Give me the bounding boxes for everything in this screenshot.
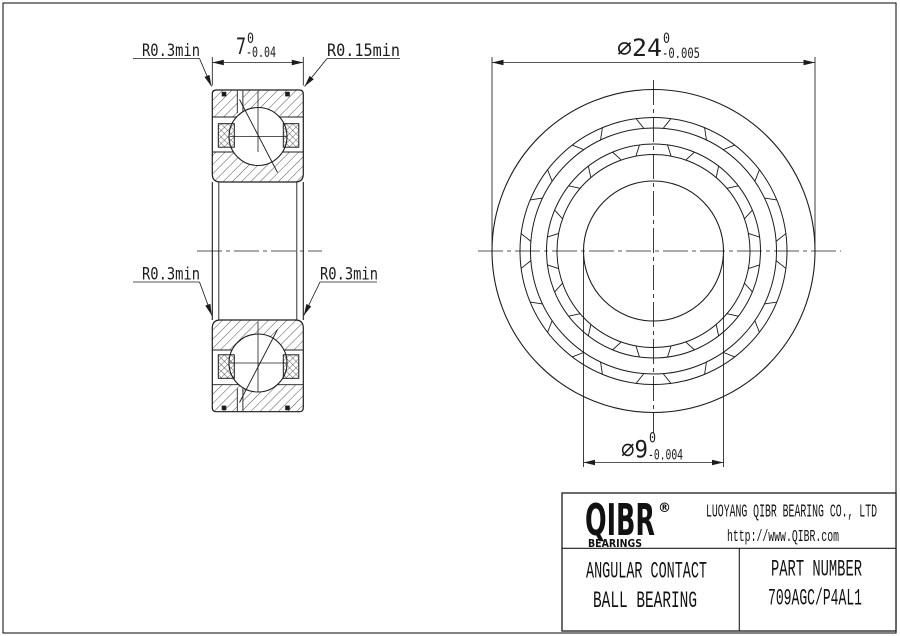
outer-dia-upper-tol: 0 — [663, 31, 670, 47]
logo-registered-mark: ® — [658, 501, 671, 516]
radius-label-top-left: R0.3min — [142, 41, 200, 61]
rivet-right — [285, 92, 290, 97]
width-dim-value: 7 — [236, 35, 246, 60]
section-view — [133, 57, 400, 412]
bore-dia-upper-tol: 0 — [649, 431, 656, 447]
section-bottom-half — [212, 320, 303, 412]
radius-label-mid-left: R0.3min — [142, 265, 200, 285]
product-name-line1: ANGULAR CONTACT — [586, 559, 707, 585]
bore-dia-lower-tol: -0.004 — [648, 448, 683, 464]
bore-dia-value: ∅9 — [621, 436, 648, 464]
counterbore-slot — [237, 389, 243, 412]
radius-label-top-right: R0.15min — [327, 41, 400, 61]
rivet-right — [285, 406, 290, 411]
logo-subtext: BEARINGS — [588, 537, 642, 550]
radius-label-mid-right: R0.3min — [320, 265, 378, 285]
cage-left — [218, 355, 234, 379]
rivet-left — [222, 92, 227, 97]
company-name: LUOYANG QIBR BEARING CO., LTD — [706, 503, 877, 523]
width-dim-lower-tol: -0.04 — [246, 45, 276, 61]
outer-dia-value: ∅24 — [617, 34, 662, 62]
part-number-label: PART NUMBER — [771, 557, 862, 583]
cage-left — [218, 124, 234, 148]
product-name-line2: BALL BEARING — [593, 588, 697, 614]
counterbore-slot — [237, 91, 243, 114]
outer-dia-lower-tol: -0.005 — [662, 46, 700, 62]
title-block: QIBR ® BEARINGS LUOYANG QIBR BEARING CO.… — [562, 493, 896, 631]
width-dimension — [212, 57, 303, 86]
rivet-left — [222, 406, 227, 411]
bearing-technical-drawing: 7 0 -0.04 R0.3min R0.15min R0.3min R0.3m… — [0, 0, 900, 636]
drawing-sheet: 7 0 -0.04 R0.3min R0.15min R0.3min R0.3m… — [0, 0, 900, 636]
cage-right — [283, 355, 299, 379]
front-view — [478, 57, 841, 467]
cage-right — [283, 124, 299, 148]
part-number-value: 709AGC/P4AL1 — [768, 586, 862, 612]
section-top-half — [212, 90, 303, 182]
company-website: http://www.QIBR.com — [727, 528, 839, 547]
